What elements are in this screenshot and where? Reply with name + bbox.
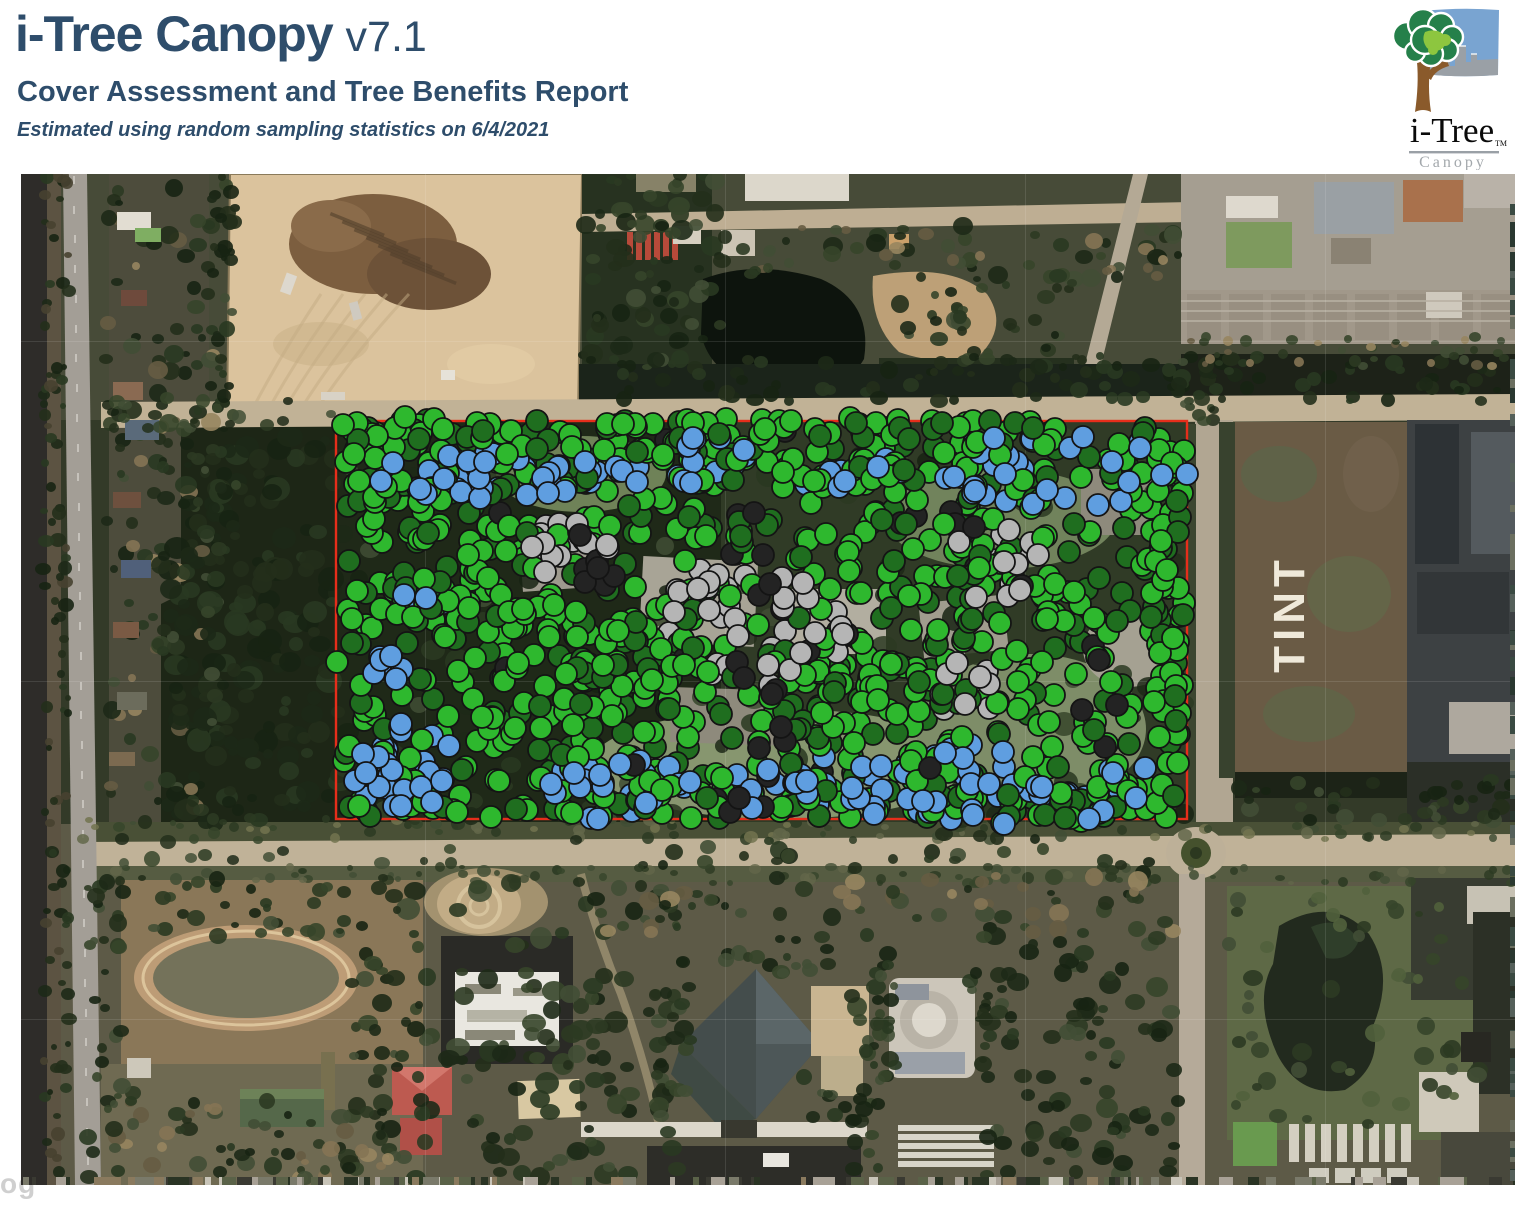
svg-text:TM: TM	[1495, 139, 1507, 148]
svg-text:Canopy: Canopy	[1419, 154, 1487, 170]
svg-text:TINT: TINT	[1265, 555, 1314, 673]
svg-text:i-Tree: i-Tree	[1410, 111, 1494, 150]
